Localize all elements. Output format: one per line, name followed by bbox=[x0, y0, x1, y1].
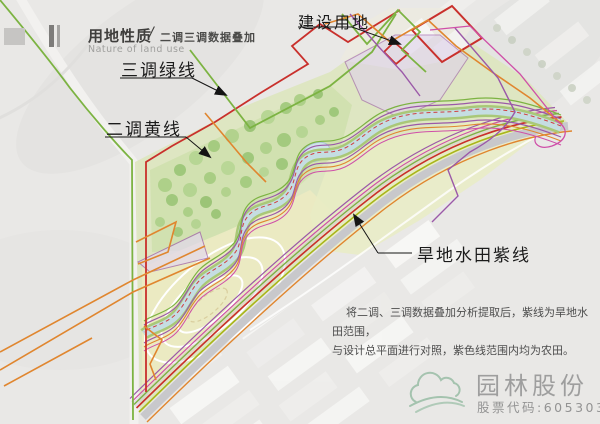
page-subtitle-en: Nature of land use bbox=[88, 44, 185, 55]
label-construction-land: 建设用地 bbox=[298, 9, 370, 33]
label-green-line: 三调绿线 bbox=[121, 56, 197, 81]
page-subtitle: 二调三调数据叠加 bbox=[160, 29, 256, 45]
annotation-line2: 与设计总平面进行对照，紫色线范围内均为农田。 bbox=[332, 341, 594, 360]
annotation-text: 将二调、三调数据叠加分析提取后，紫线为旱地水田范围， 与设计总平面进行对照，紫色… bbox=[332, 303, 594, 360]
logo-stock-code: 股票代码:605303 bbox=[477, 397, 600, 416]
cloud-logo-icon bbox=[402, 368, 472, 420]
annotation-line1: 将二调、三调数据叠加分析提取后，紫线为旱地水田范围， bbox=[332, 303, 594, 341]
label-purple-line: 旱地水田紫线 bbox=[417, 241, 531, 266]
page-title: 用地性质 bbox=[88, 25, 152, 46]
logo-company-name: 园林股份 bbox=[476, 366, 588, 401]
title-separator: / bbox=[149, 25, 154, 41]
site-plan-map bbox=[0, 0, 600, 424]
header-deco-bar bbox=[57, 25, 60, 47]
header-deco-bar bbox=[49, 25, 54, 47]
planning-slide: 用地性质 / 二调三调数据叠加 Nature of land use 三调绿线 … bbox=[0, 0, 600, 424]
label-yellow-line: 二调黄线 bbox=[106, 115, 182, 140]
header-deco-square bbox=[4, 28, 25, 45]
